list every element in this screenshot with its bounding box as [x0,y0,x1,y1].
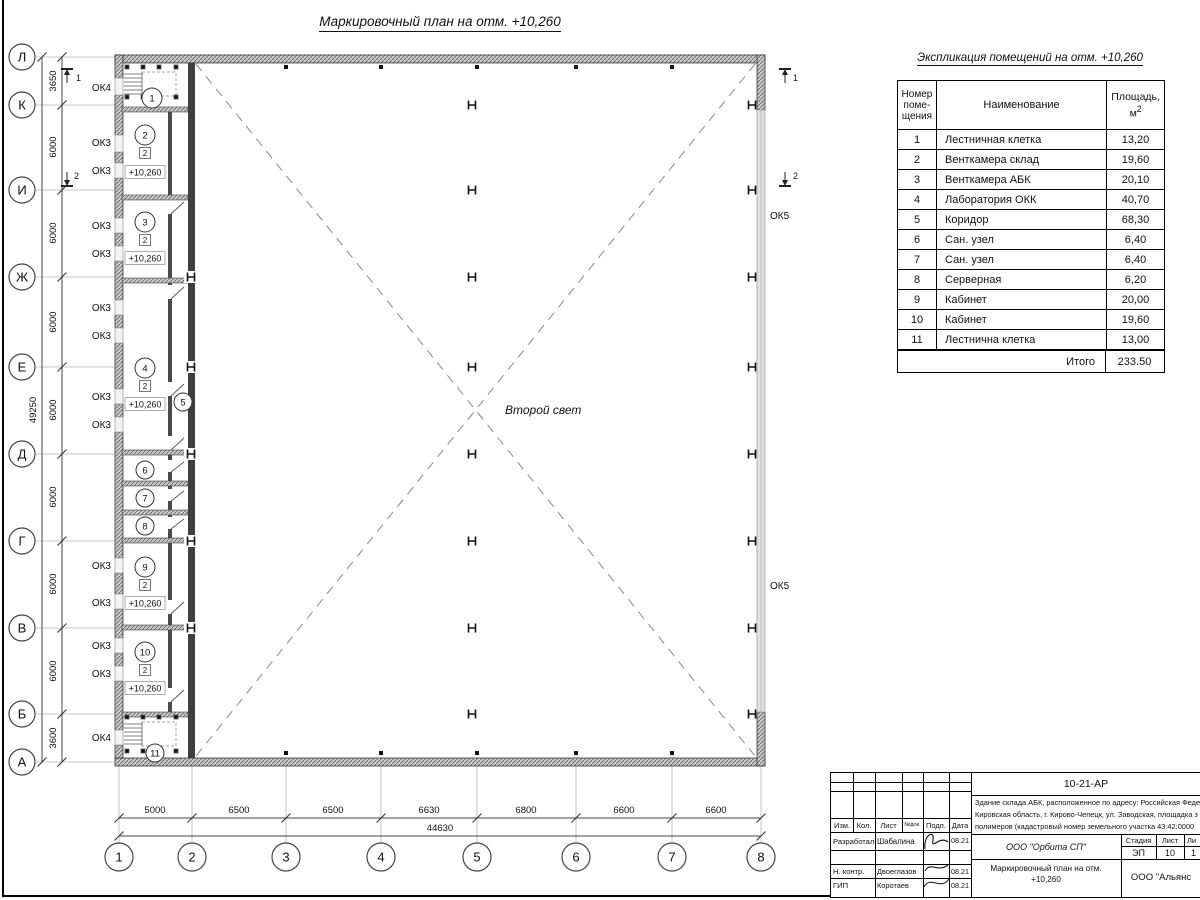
table-row: 4Лаборатория ОКК40,70 [898,190,1164,210]
dim-col-total: 44630 [427,823,453,834]
table-row: 7Сан. узел6,40 [898,250,1164,270]
dim-col-4: 6800 [515,805,536,816]
project-description: Здание склада АБК, расположенное по адре… [975,797,1200,833]
table-row: 8Серверная6,20 [898,270,1164,290]
tb-header-ndok: №док. [902,818,923,832]
windows [115,78,765,745]
axis-col-label: 2 [188,850,195,865]
tb-header-data: Дата [949,818,971,832]
room-number: 5 [180,398,185,409]
tb-role: ГИП [833,878,875,892]
elevation-mark: +10,260 [129,684,162,694]
total-label: Итого [898,351,1106,372]
table-row: 11Лестнична клетка13,00 [898,330,1164,350]
window-label: ОК5 [770,581,790,592]
axis-col-label: 8 [757,850,764,865]
sheets-label: Ли [1187,835,1200,846]
window-label: ОК5 [770,211,790,222]
table-row: 6Сан. узел6,40 [898,230,1164,250]
tb-date: 08.21 [949,833,971,848]
floor-plan: 3650 6000 6000 6000 6000 6000 6000 6000 … [0,0,820,900]
section-1-left: 1 [76,73,81,83]
wall-column-dots [284,65,674,755]
dim-col-5: 6600 [613,805,634,816]
table-row: 1Лестничная клетка13,20 [898,130,1164,150]
hall-area: Второй свет [196,64,755,756]
axis-col-label: 4 [377,850,384,865]
dim-col-0: 5000 [144,805,165,816]
window-label: ОК4 [92,83,112,94]
window-label: ОК3 [92,138,112,149]
section-1-right: 1 [793,73,798,83]
axis-col-label: 5 [473,850,480,865]
room-type-mark: 2 [143,666,148,675]
window-label: ОК3 [92,669,112,680]
window-label: ОК3 [92,392,112,403]
elevation-mark: +10,260 [129,254,162,264]
table-header: Номер поме- щения Наименование Площадь, … [898,81,1164,130]
room-marks: 1 2 3 4 5 6 7 8 9 10 11 2 2 2 2 [125,88,192,762]
axis-col-label: 6 [572,850,579,865]
axis-row-label: К [18,98,26,113]
sheets-value: 1 [1191,847,1200,859]
title-block: Изм. Кол. Лист №док. Подп. Дата Разработ… [830,772,1200,898]
room-type-mark: 2 [143,382,148,391]
signatures [921,829,951,895]
second-light-label: Второй свет [505,403,581,417]
window-label: ОК3 [92,598,112,609]
room-number: 6 [142,466,147,477]
axis-row-label: Б [18,707,27,722]
table-row: 5Коридор68,30 [898,210,1164,230]
axis-row-label: Л [18,50,27,65]
room-number: 3 [142,218,147,229]
room-number: 7 [142,494,147,505]
sheet-value: 10 [1156,847,1184,859]
table-total-row: Итого 233.50 [898,350,1164,372]
room-number: 9 [142,563,147,574]
outer-walls [115,55,765,766]
axis-col-label: 1 [115,850,122,865]
dim-row-5: 6000 [48,486,59,507]
section-2-right: 2 [793,171,798,181]
tb-role: Н. контр. [833,864,875,878]
tb-date: 08.21 [949,864,971,878]
table-row: 2Венткамера склад19,60 [898,150,1164,170]
axis-row-label: Ж [16,270,28,285]
dim-row-8: 3600 [48,727,59,748]
window-label: ОК3 [92,641,112,652]
tb-header-kol: Кол. [853,818,875,832]
table-row: 10Кабинет19,60 [898,310,1164,330]
room-type-mark: 2 [143,149,148,158]
dim-col-6: 6600 [705,805,726,816]
drawing-sheet: Маркировочный план на отм. +10,260 [0,0,1200,900]
axis-bubbles: Л К И Ж Е Д Г В Б А 1 2 3 4 5 6 7 8 [9,44,775,871]
column-symbols [184,101,756,719]
window-label: ОК4 [92,733,112,744]
dim-row-1: 6000 [48,136,59,157]
dim-row-7: 6000 [48,660,59,681]
dim-row-4: 6000 [48,399,59,420]
stage-value: ЭП [1121,847,1156,859]
axis-col-label: 7 [668,850,675,865]
window-label: ОК3 [92,221,112,232]
dim-col-2: 6500 [322,805,343,816]
room-type-mark: 2 [143,581,148,590]
doc-number: 10-21-АР [971,775,1200,793]
table-row: 9Кабинет20,00 [898,290,1164,310]
elevation-mark: +10,260 [129,400,162,410]
col-header-name: Наименование [937,81,1107,129]
window-label: ОК3 [92,166,112,177]
total-value: 233.50 [1106,351,1163,372]
room-number: 2 [142,131,147,142]
room-number: 1 [149,94,154,105]
axis-row-label: И [17,183,26,198]
tb-header-list: Лист [875,818,902,832]
dim-row-2: 6000 [48,222,59,243]
tb-date: 08.21 [949,878,971,892]
window-labels: ОК4 ОК3 ОК3 ОК3 ОК3 ОК3 ОК3 ОК3 ОК3 ОК3 … [92,83,790,744]
explication-title: Экспликация помещений на отм. +10,260 [897,52,1163,66]
axis-row-label: А [18,755,27,770]
dim-row-6: 6000 [48,573,59,594]
elevation-mark: +10,260 [129,168,162,178]
tb-name: Коротаев [877,878,923,892]
axis-row-label: Е [18,360,27,375]
window-label: ОК3 [92,561,112,572]
room-number: 11 [150,749,160,760]
stage-label: Стадия [1121,835,1156,846]
dim-col-3: 6630 [418,805,439,816]
tb-header-izm: Изм. [831,818,853,832]
axis-row-label: Г [18,534,25,549]
dim-row-0: 3650 [48,70,59,91]
window-label: ОК3 [92,331,112,342]
window-label: ОК3 [92,420,112,431]
axis-row-label: В [18,621,27,636]
dim-col-1: 6500 [228,805,249,816]
table-row: 3Венткамера АБК20,10 [898,170,1164,190]
section-2-left: 2 [74,171,79,181]
drawing-title: Маркировочный план на отм. +10,260 [971,863,1121,885]
tb-name: Двоеглазов [877,864,923,878]
tb-name: Шабалина [877,832,923,850]
room-number: 4 [142,364,147,375]
room-number: 10 [140,648,151,659]
room-type-mark: 2 [143,236,148,245]
window-label: ОК3 [92,249,112,260]
elevation-mark: +10,260 [129,599,162,609]
tb-role: Разработал [833,832,875,850]
axis-row-label: Д [18,447,27,462]
axis-col-label: 3 [282,850,289,865]
col-header-area: Площадь, м2 [1107,81,1164,129]
dim-row-total: 49250 [28,397,39,423]
dim-row-3: 6000 [48,311,59,332]
room-number: 8 [142,522,147,533]
window-label: ОК3 [92,303,112,314]
explication-table: Номер поме- щения Наименование Площадь, … [897,80,1165,373]
col-header-number: Номер поме- щения [898,81,937,129]
sheet-label: Лист [1156,835,1184,846]
company-name: ООО "Орбита СП" [971,836,1121,857]
company2-name: ООО "Альянс [1121,861,1200,893]
